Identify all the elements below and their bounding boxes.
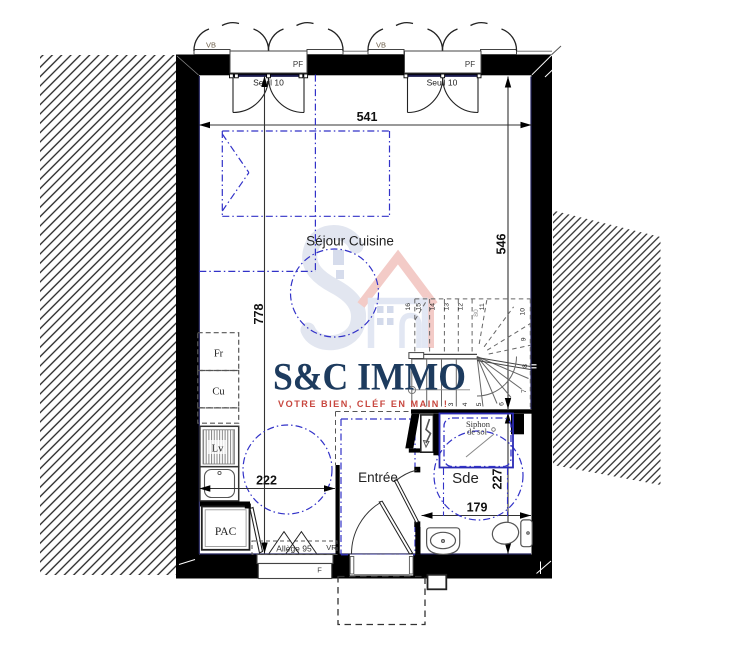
svg-text:16: 16 [405,303,412,311]
svg-text:222: 222 [256,474,277,488]
svg-text:546: 546 [495,234,509,255]
svg-text:12: 12 [457,303,464,311]
svg-text:Seuil 10: Seuil 10 [253,78,284,88]
svg-text:3: 3 [448,402,455,406]
svg-text:PAC: PAC [215,526,237,538]
svg-text:Séjour Cuisine: Séjour Cuisine [306,234,394,249]
svg-text:VOTRE BIEN, CLÉF EN MAIN !: VOTRE BIEN, CLÉF EN MAIN ! [278,399,449,409]
svg-text:179: 179 [467,501,488,515]
svg-text:PF: PF [293,60,303,69]
svg-text:Sde: Sde [452,470,479,487]
svg-text:S&C IMMO: S&C IMMO [273,355,466,399]
svg-text:10: 10 [520,308,527,316]
svg-text:6: 6 [498,402,505,406]
svg-text:9: 9 [521,337,528,341]
svg-text:F: F [317,566,322,575]
svg-text:Lv: Lv [212,444,224,455]
svg-text:11: 11 [479,303,486,310]
svg-text:5: 5 [476,402,483,406]
svg-text:13: 13 [444,303,451,311]
svg-text:PF: PF [465,60,475,69]
svg-text:de sol: de sol [467,427,488,437]
svg-text:4: 4 [462,402,469,406]
svg-text:Entrée: Entrée [358,470,398,485]
svg-text:Seuil 10: Seuil 10 [427,78,458,88]
svg-text:15: 15 [415,303,422,311]
svg-text:14: 14 [430,303,437,311]
svg-text:Fr: Fr [214,349,224,360]
svg-text:541: 541 [357,110,378,124]
svg-text:227: 227 [491,469,505,490]
svg-text:Cu: Cu [212,387,225,398]
svg-text:VB: VB [206,41,216,50]
svg-text:Allège 95: Allège 95 [276,544,312,554]
svg-text:778: 778 [252,304,266,325]
svg-text:80: 80 [473,309,480,317]
svg-text:VR: VR [326,543,337,552]
svg-text:7: 7 [521,389,528,393]
svg-text:VB: VB [376,41,386,50]
svg-text:8: 8 [522,364,529,368]
